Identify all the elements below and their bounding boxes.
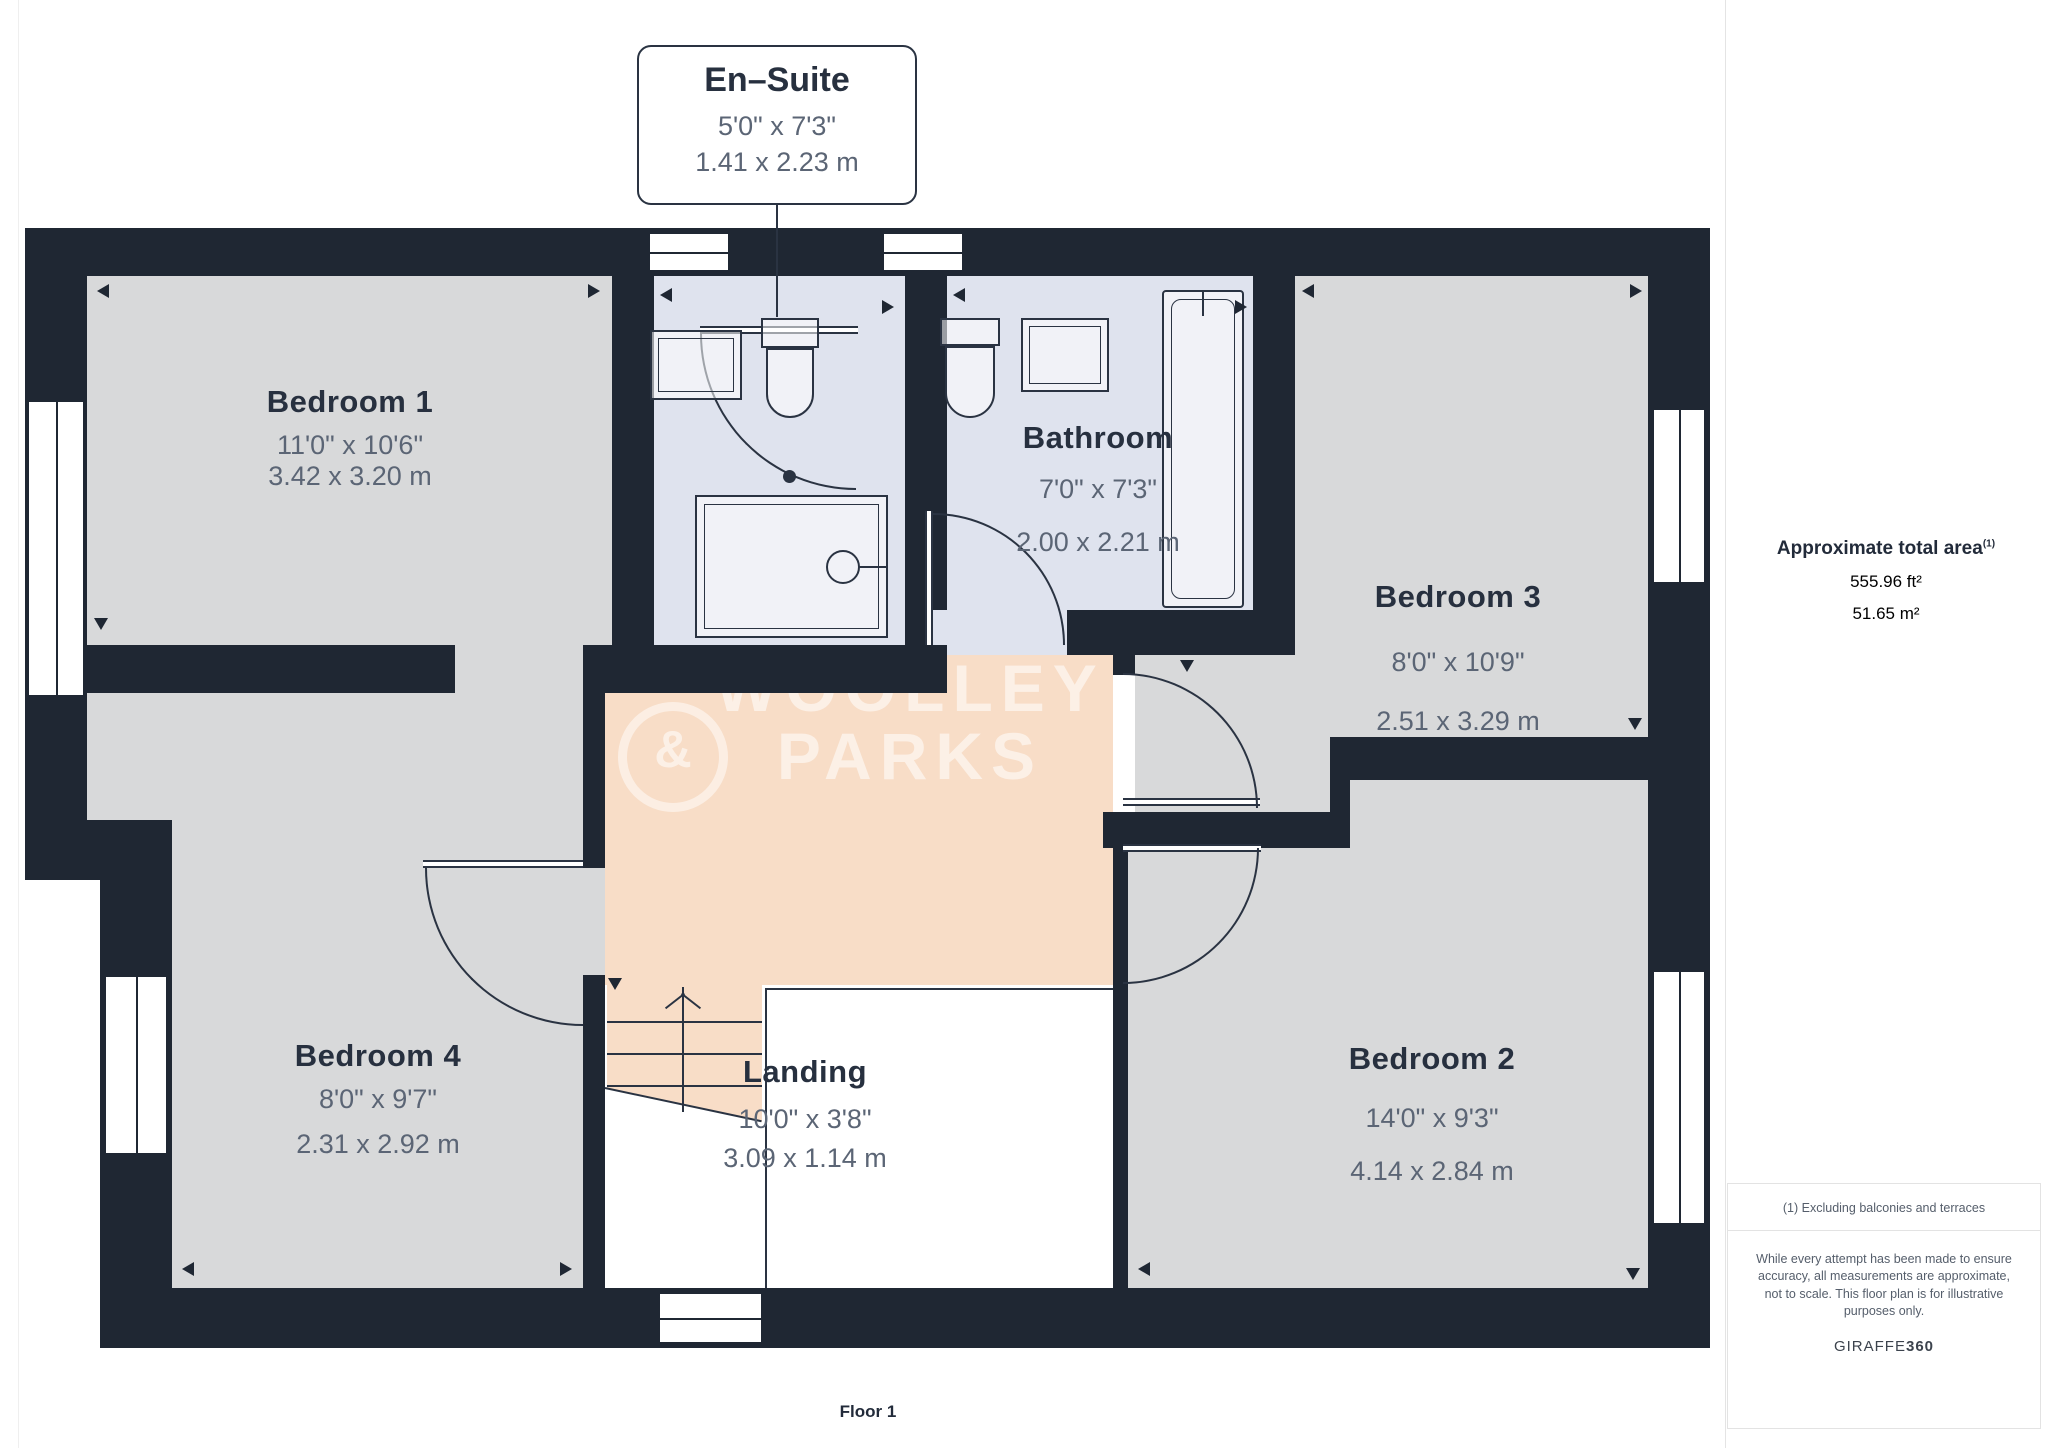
window-bed1-left (27, 400, 85, 697)
page-edge-line (18, 0, 19, 1448)
window-bed2-right (1652, 970, 1706, 1225)
stair-step (607, 1085, 762, 1087)
wall-bed3-bed2-left (1103, 812, 1350, 848)
dimension-arrow (1180, 660, 1194, 672)
window-top-bathroom (882, 232, 964, 272)
total-area-block: Approximate total area(1) 555.96 ft² 51.… (1736, 538, 2036, 624)
floor-label: Floor 1 (668, 1402, 1068, 1422)
stair-step (607, 1021, 762, 1023)
total-area-m: 51.65 m² (1736, 604, 2036, 624)
bathroom-door-leaf (925, 511, 933, 645)
dimension-arrow (97, 284, 109, 298)
bathroom-toilet-tank-icon (940, 318, 1000, 346)
wall-bathroom-bottom-right (1067, 610, 1253, 655)
window-bed3-right (1652, 408, 1706, 584)
wall-bed1-ensuite (612, 276, 654, 645)
dimension-arrow (660, 288, 672, 302)
ensuite-toilet-bowl-icon (766, 348, 814, 418)
bedroom2-floor-upper (1350, 780, 1648, 845)
bedroom1-floor (87, 276, 612, 645)
bedroom4-floor (87, 693, 583, 820)
total-area-superscript: (1) (1983, 539, 1995, 550)
ensuite-toilet-tank-icon (761, 318, 819, 348)
total-area-ft: 555.96 ft² (1736, 572, 2036, 592)
brand-suffix: 360 (1906, 1338, 1934, 1355)
bathroom-bathtub-tap-icon (1202, 292, 1204, 316)
wall-bathroom-bed3 (1253, 276, 1295, 655)
window-bottom-stairwell (658, 1292, 763, 1344)
dimension-arrow (560, 1262, 572, 1276)
window-bed4-left (104, 975, 168, 1155)
wall-bed4-landing-upper (583, 693, 605, 868)
dimension-arrow (94, 618, 108, 630)
floorplan-page: & WOOLLEY PARKS (0, 0, 2048, 1448)
dimension-arrow (1626, 1268, 1640, 1280)
dimension-arrow (1630, 284, 1642, 298)
callout-dim-metric: 1.41 x 2.23 m (639, 144, 915, 180)
wall-bed1-bottom (87, 645, 455, 693)
bedroom4-door-leaf (423, 860, 583, 868)
ensuite-shower-handle-line (858, 566, 886, 568)
ensuite-toilet-flush-icon (783, 470, 796, 483)
stair-rail (682, 987, 684, 1112)
callout-title: En–Suite (639, 61, 915, 100)
disclaimer-text: While every attempt has been made to ens… (1728, 1231, 2040, 1326)
ensuite-callout: En–Suite 5'0" x 7'3" 1.41 x 2.23 m (637, 45, 917, 205)
wall-top (25, 228, 1710, 276)
ensuite-sink-icon (650, 330, 742, 400)
dimension-arrow (1302, 284, 1314, 298)
landing-floor (605, 693, 905, 985)
dimension-arrow (1138, 1262, 1150, 1276)
dimension-arrow (1235, 300, 1247, 314)
total-area-title: Approximate total area(1) (1736, 538, 2036, 560)
giraffe360-logo: GIRAFFE360 (1728, 1338, 2040, 1355)
dimension-arrow (882, 300, 894, 314)
bathroom-sink-icon (1021, 318, 1109, 392)
wall-bed4-landing-lower (583, 975, 605, 1288)
ensuite-shower-handle-icon (826, 550, 860, 584)
bedroom4-door-gap (583, 868, 605, 975)
wall-left-step (25, 820, 172, 880)
wall-ensuite-bottom (583, 645, 947, 693)
landing-corridor (905, 655, 1113, 990)
dimension-arrow (953, 288, 965, 302)
stairwell-outline (765, 988, 1113, 1288)
window-top-ensuite (648, 232, 730, 272)
wall-bed3-bed2-right (1330, 737, 1648, 780)
callout-leader-line (776, 205, 778, 317)
dimension-arrow (588, 284, 600, 298)
area-footnote: (1) Excluding balconies and terraces (1728, 1184, 2040, 1231)
wall-bed3-bed2-step (1330, 737, 1350, 848)
wall-landing-bed3 (1113, 655, 1135, 675)
dimension-arrow (182, 1262, 194, 1276)
dimension-arrow (1628, 718, 1642, 730)
bathroom-toilet-bowl-icon (945, 346, 995, 418)
sidebar-footer-box: (1) Excluding balconies and terraces Whi… (1727, 1183, 2041, 1429)
total-area-title-text: Approximate total area (1777, 538, 1983, 559)
callout-dim-imperial: 5'0" x 7'3" (639, 108, 915, 144)
wall-bottom (100, 1288, 1710, 1348)
dimension-arrow (608, 978, 622, 990)
brand-name: GIRAFFE (1834, 1338, 1906, 1355)
sidebar-divider (1725, 0, 1726, 1448)
bedroom1-door-gap (455, 645, 583, 693)
bathroom-bathtub-icon (1162, 290, 1244, 608)
stair-step (607, 1053, 762, 1055)
